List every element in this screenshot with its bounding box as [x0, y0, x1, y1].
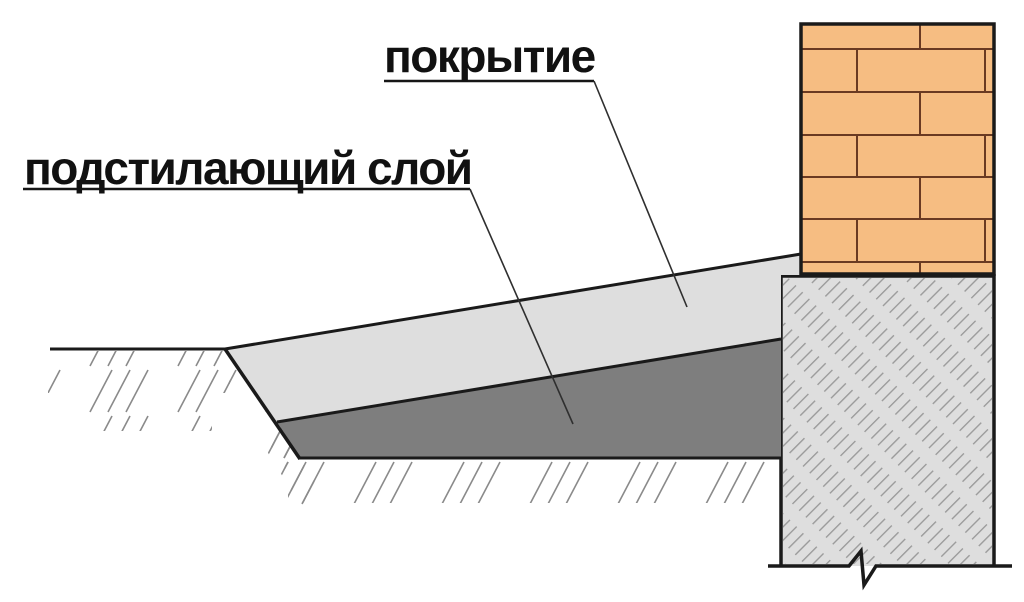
- brick-wall-body: [801, 24, 994, 274]
- section-drawing-canvas: покрытие подстилающий слой: [0, 0, 1024, 602]
- foundation: [768, 276, 1012, 585]
- blind-area-section-drawing: [0, 0, 1024, 602]
- brick-wall: [801, 24, 994, 274]
- covering-leader-line: [594, 81, 687, 307]
- label-underlying-layer: подстилающий слой: [24, 145, 472, 191]
- label-covering: покрытие: [384, 33, 595, 79]
- foundation-concrete-hatch: [783, 278, 992, 564]
